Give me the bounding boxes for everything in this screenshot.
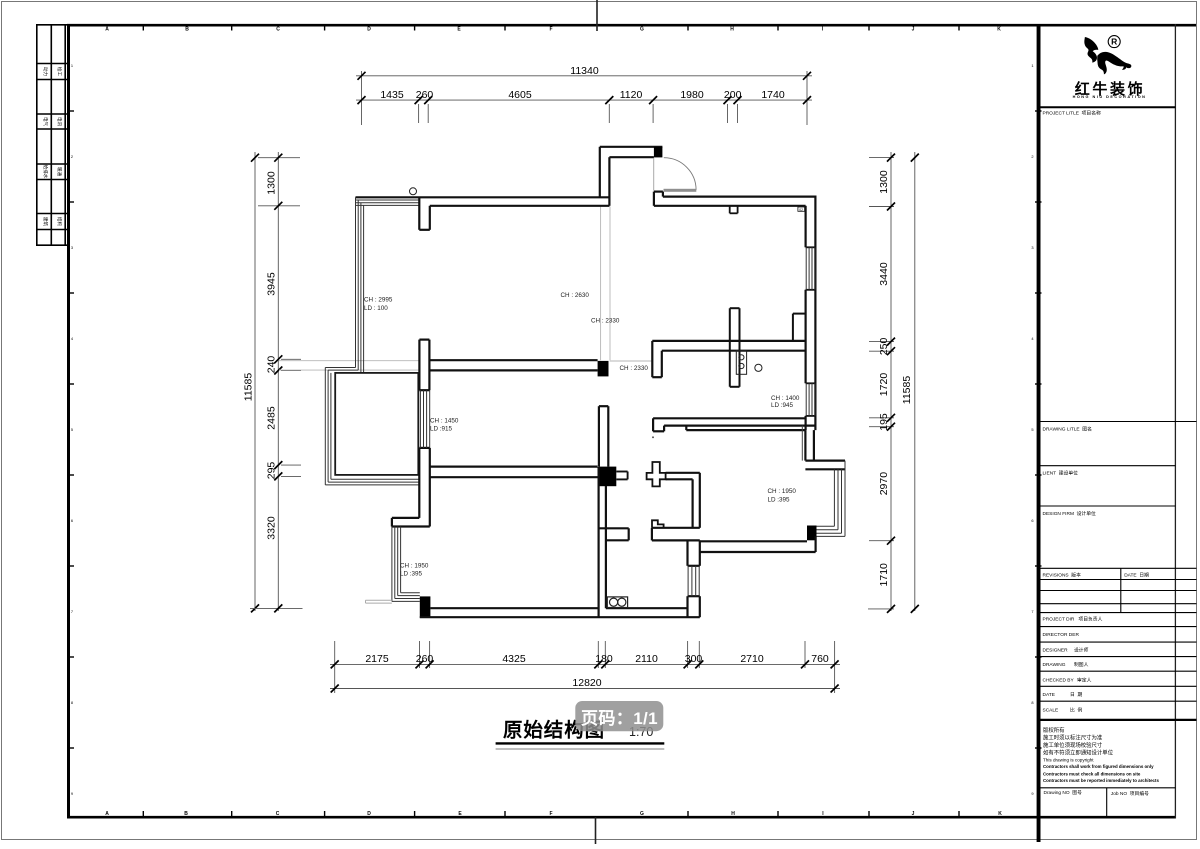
- svg-text:1300: 1300: [266, 171, 278, 195]
- svg-text:2110: 2110: [635, 653, 658, 665]
- svg-text:3320: 3320: [266, 516, 278, 540]
- svg-text:CH : 1950: CH : 1950: [768, 488, 797, 495]
- svg-text:D: D: [367, 811, 371, 817]
- svg-text:J: J: [912, 811, 915, 817]
- svg-text:PROJECT LITLE 项目名称: PROJECT LITLE 项目名称: [1043, 110, 1101, 117]
- svg-text:G: G: [640, 811, 644, 817]
- svg-text:电讯: 电讯: [56, 117, 63, 127]
- svg-text:C: C: [276, 811, 280, 817]
- svg-text:CH : 1950: CH : 1950: [400, 562, 429, 569]
- svg-text:R: R: [1111, 37, 1117, 47]
- svg-text:Contractors must check all dim: Contractors must check all dimensions on…: [1043, 771, 1141, 776]
- svg-text:REVISIONS 版本: REVISIONS 版本: [1043, 571, 1082, 578]
- svg-text:2970: 2970: [878, 472, 890, 496]
- svg-text:SCALE: SCALE: [1043, 708, 1059, 714]
- svg-text:180: 180: [595, 653, 613, 665]
- svg-text:8: 8: [1031, 700, 1033, 705]
- svg-text:11585: 11585: [243, 373, 255, 402]
- svg-text:E: E: [457, 27, 461, 33]
- svg-text:1720: 1720: [878, 373, 890, 397]
- svg-text:F: F: [549, 27, 552, 33]
- svg-text:施工时须以标注尺寸为准: 施工时须以标注尺寸为准: [1043, 734, 1103, 742]
- svg-text:5: 5: [1031, 427, 1033, 432]
- svg-text:审定人: 审定人: [1077, 677, 1092, 684]
- svg-text:4: 4: [1031, 336, 1034, 341]
- svg-text:K: K: [998, 811, 1002, 817]
- svg-text:日 期: 日 期: [1070, 692, 1082, 698]
- svg-text:2485: 2485: [266, 406, 278, 430]
- svg-text:260: 260: [416, 653, 434, 665]
- svg-text:3945: 3945: [266, 272, 278, 296]
- svg-text:CH : 2995: CH : 2995: [364, 297, 393, 304]
- svg-text:建筑: 建筑: [42, 217, 49, 227]
- svg-text:1: 1: [71, 63, 73, 68]
- svg-text:7: 7: [1031, 609, 1033, 614]
- svg-text:6: 6: [71, 518, 73, 523]
- svg-text:240: 240: [266, 356, 278, 374]
- svg-text:CH : 2330: CH : 2330: [591, 318, 620, 325]
- svg-text:3440: 3440: [878, 262, 890, 286]
- svg-text:295: 295: [266, 462, 278, 480]
- svg-text:DESIGNER: DESIGNER: [1043, 648, 1069, 654]
- svg-text:结构: 结构: [56, 217, 63, 227]
- svg-text:DATE: DATE: [1043, 692, 1055, 698]
- svg-text:H: H: [730, 27, 734, 33]
- svg-text:HONG NIU DECORATION: HONG NIU DECORATION: [1073, 95, 1147, 99]
- svg-text:绘工: 绘工: [56, 67, 63, 77]
- svg-text:D: D: [367, 27, 371, 33]
- svg-text:Job NO 项目编号: Job NO 项目编号: [1111, 790, 1149, 797]
- svg-text:2: 2: [1031, 154, 1033, 159]
- svg-text:施工单位须现场校验尺寸: 施工单位须现场校验尺寸: [1043, 741, 1103, 749]
- svg-text:4: 4: [71, 336, 74, 341]
- svg-text:C: C: [276, 27, 280, 33]
- svg-text:5: 5: [71, 427, 73, 432]
- svg-text:H: H: [731, 811, 735, 817]
- svg-text:CH : 1400: CH : 1400: [771, 395, 800, 402]
- svg-text:12820: 12820: [572, 677, 601, 689]
- svg-text:J: J: [912, 27, 915, 33]
- svg-text:6: 6: [1031, 518, 1033, 523]
- svg-text:3: 3: [1031, 245, 1033, 250]
- svg-text:版权所有: 版权所有: [1043, 726, 1065, 734]
- svg-text:4325: 4325: [502, 653, 526, 665]
- svg-text:Drawing NO 图号: Drawing NO 图号: [1044, 790, 1083, 796]
- svg-text:页码：1/1: 页码：1/1: [581, 709, 658, 728]
- svg-text:动力: 动力: [42, 67, 49, 77]
- svg-text:1435: 1435: [380, 89, 404, 101]
- svg-text:This drawing is copyright: This drawing is copyright: [1043, 757, 1094, 762]
- svg-text:11340: 11340: [570, 65, 599, 77]
- svg-text:250: 250: [878, 337, 890, 355]
- svg-text:给排水: 给排水: [42, 165, 49, 179]
- svg-text:1: 1: [1031, 63, 1033, 68]
- svg-text:如有不符须立即通知设计单位: 如有不符须立即通知设计单位: [1043, 749, 1114, 757]
- svg-text:制图人: 制图人: [1074, 661, 1089, 668]
- svg-text:DIRECTOR DER: DIRECTOR DER: [1043, 632, 1080, 638]
- svg-text:760: 760: [811, 653, 829, 665]
- svg-text:CH : 1450: CH : 1450: [430, 417, 459, 424]
- svg-text:Contractors shall work from fi: Contractors shall work from figured dime…: [1043, 764, 1154, 769]
- svg-text:PROJECT DIR 项目负责人: PROJECT DIR 项目负责人: [1043, 615, 1103, 622]
- svg-text:9: 9: [71, 791, 73, 796]
- svg-text:2710: 2710: [740, 653, 764, 665]
- svg-text:A: A: [105, 811, 109, 817]
- svg-text:DATE 日期: DATE 日期: [1124, 572, 1149, 578]
- svg-text:G: G: [640, 27, 644, 33]
- svg-text:1120: 1120: [620, 89, 643, 101]
- svg-text:LD :395: LD :395: [400, 571, 423, 578]
- svg-text:1740: 1740: [761, 89, 785, 101]
- svg-text:2: 2: [71, 154, 73, 159]
- svg-text:F: F: [549, 811, 552, 817]
- svg-text:Contractors must be reported i: Contractors must be reported immediately…: [1043, 778, 1159, 783]
- svg-text:02: 02: [799, 208, 803, 212]
- svg-text:260: 260: [416, 89, 434, 101]
- svg-text:1980: 1980: [680, 89, 704, 101]
- svg-text:8: 8: [71, 700, 73, 705]
- svg-text:3: 3: [71, 245, 73, 250]
- svg-text:K: K: [997, 27, 1001, 33]
- svg-text:LD :945: LD :945: [771, 402, 794, 409]
- svg-text:1300: 1300: [878, 170, 890, 194]
- svg-text:4605: 4605: [508, 89, 532, 101]
- svg-text:CH : 2330: CH : 2330: [620, 365, 649, 372]
- svg-text:电气: 电气: [43, 117, 49, 127]
- svg-text:2175: 2175: [365, 653, 389, 665]
- svg-text:LD : 100: LD : 100: [364, 305, 388, 312]
- svg-text:设计师: 设计师: [1074, 647, 1089, 654]
- svg-text:CHECKED BY: CHECKED BY: [1043, 678, 1075, 684]
- svg-text:DRAWING LITLE 图名: DRAWING LITLE 图名: [1043, 426, 1093, 433]
- svg-text:暖通: 暖通: [56, 167, 63, 177]
- svg-text:DRAWING: DRAWING: [1043, 662, 1066, 668]
- svg-text:LIENT 建设单位: LIENT 建设单位: [1043, 470, 1079, 477]
- svg-text:B: B: [185, 27, 189, 33]
- svg-text:1710: 1710: [878, 563, 890, 587]
- svg-text:比 例: 比 例: [1070, 707, 1082, 714]
- svg-text:DESIGN FIRM 设计单位: DESIGN FIRM 设计单位: [1043, 510, 1097, 517]
- svg-text:300: 300: [685, 653, 703, 665]
- svg-text:9: 9: [1031, 791, 1033, 796]
- svg-text:7: 7: [71, 609, 73, 614]
- svg-text:200: 200: [724, 89, 742, 101]
- svg-text:11585: 11585: [901, 376, 913, 405]
- svg-text:I: I: [822, 27, 824, 33]
- svg-text:B: B: [184, 811, 188, 817]
- svg-text:195: 195: [878, 413, 890, 431]
- svg-text:LD :395: LD :395: [768, 496, 791, 503]
- svg-text:LD :915: LD :915: [430, 425, 453, 432]
- svg-text:CH : 2630: CH : 2630: [561, 292, 590, 299]
- svg-text:A: A: [105, 27, 109, 33]
